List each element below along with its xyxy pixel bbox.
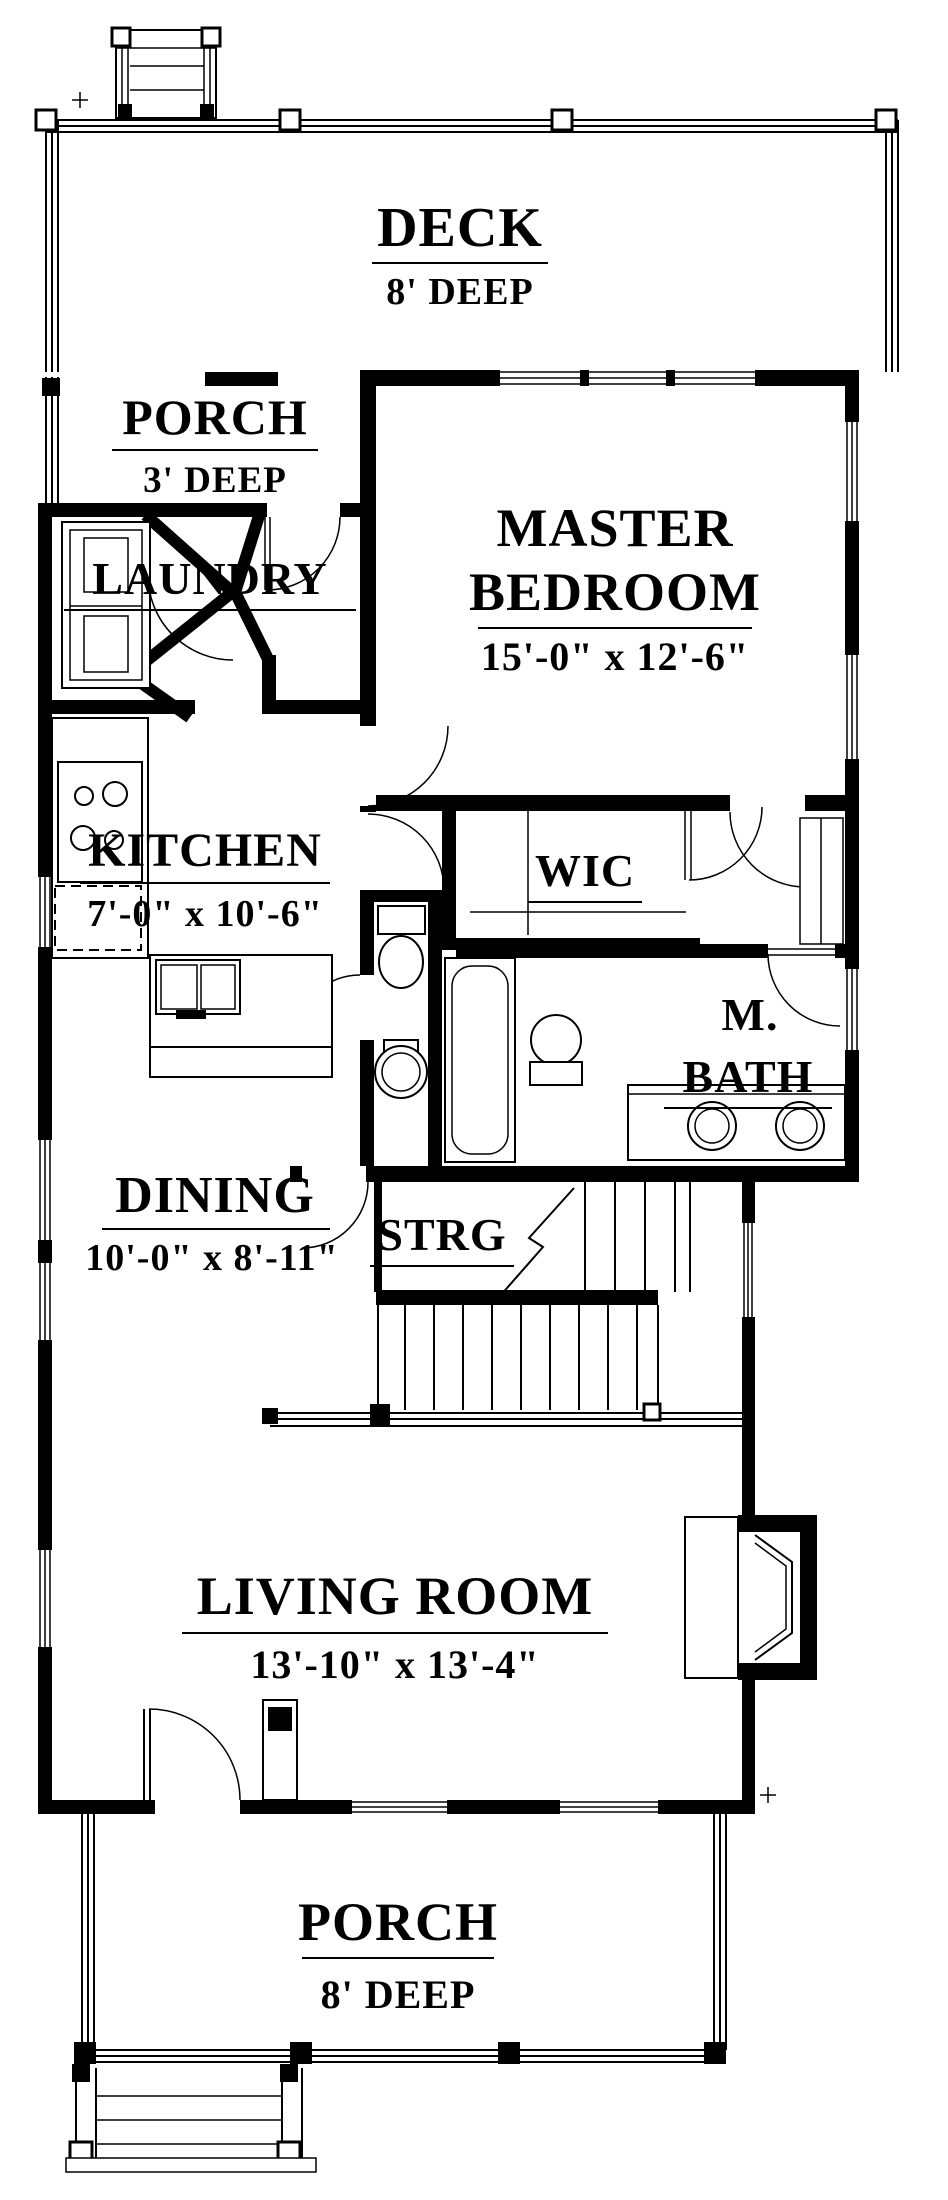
window [352,1802,447,1812]
wall-segment [805,795,845,811]
room-dim: 8' DEEP [321,1972,476,2017]
double-sink-icon [156,960,240,1019]
wall-segment [360,806,376,812]
room-label: STRG [377,1209,506,1260]
hall-closet [800,818,843,944]
wall-segment [686,795,700,807]
wall-segment [145,594,230,662]
door-swing [768,954,840,1026]
door-swing [730,812,805,887]
wall-segment [38,1340,52,1550]
rail-post [876,110,896,130]
window [744,1223,752,1317]
bathtub-icon [445,958,515,1162]
wall-segment [742,1317,755,1532]
room-label: DECK [377,197,543,259]
room-dim: 8' DEEP [386,271,533,313]
wall-segment [360,890,374,975]
sink-icon [688,1102,736,1150]
chimney-column [263,1700,297,1800]
wall-segment [658,1800,755,1814]
window [40,1263,50,1340]
front-door [144,1709,240,1800]
room-label: M. [722,989,779,1040]
wall-segment [38,1647,52,1814]
rail-post [370,1404,390,1426]
room-label: LAUNDRY [92,553,327,604]
rail-post [118,104,132,118]
room-dim: 13'-10" x 13'-4" [250,1642,539,1687]
powder-room [366,898,428,1098]
rail-post [280,2064,298,2082]
door-swing [149,1709,240,1800]
wall-segment [742,1166,755,1223]
window [847,422,857,521]
kitchen-island [150,955,332,1077]
wall-segment [442,795,456,950]
rail-post [280,110,300,130]
deck-stairs [112,28,220,118]
hearth [685,1517,738,1678]
room-label: KITCHEN [88,824,322,877]
door-swing [368,726,448,806]
room-dim: 7'-0" x 10'-6" [87,893,323,935]
wall-segment [845,759,859,969]
wic: WIC [470,800,843,944]
door-swing [689,807,762,880]
sink-icon [776,1102,824,1150]
pedestal-sink-icon [375,1040,427,1098]
stair-railing [262,1404,744,1426]
firebox-inner [755,1543,786,1652]
wall-segment [360,1040,374,1166]
room-label: PORCH [122,389,308,445]
fireplace-icon [685,1515,817,1680]
rail-post [552,110,572,130]
break-line [500,1188,574,1296]
window [40,1550,50,1647]
wall-segment [38,503,52,877]
wall-segment [262,700,362,714]
rail-post [202,28,220,46]
room-label: BATH [683,1051,814,1102]
window [40,877,50,947]
porch-upper: PORCH 3' DEEP [46,377,318,503]
wall-segment [447,1800,560,1814]
bath-door [768,949,840,1026]
window [847,655,857,759]
kitchen: KITCHEN 7'-0" x 10'-6" [52,718,332,1077]
deck: DECK 8' DEEP [36,28,898,396]
wall-segment [456,944,768,958]
room-label: DINING [115,1167,315,1224]
wic-door [685,807,762,880]
wall-segment [205,372,278,386]
wall-segment [376,795,730,811]
rail-post [262,1408,278,1424]
wall-segment [376,1290,658,1305]
wall-segment [38,1800,155,1814]
bottom-step [66,2158,316,2172]
wall-segment [845,1050,859,1182]
rail-post [36,110,56,130]
rail-post [644,1404,660,1420]
rail-post [112,28,130,46]
porch-lower: PORCH 8' DEEP [66,1814,726,2172]
dining: DINING 10'-0" x 8'-11" [85,1167,339,1279]
wall-segment [360,890,443,902]
wall-segment [360,370,376,726]
window [40,1140,50,1240]
rail-post [74,2042,96,2064]
toilet-icon [378,906,425,988]
wall-segment [38,947,52,1140]
rail-post [200,104,214,118]
rail-post [498,2042,520,2064]
living-room: LIVING ROOM 13'-10" x 13'-4" [182,1515,817,1803]
washer-dryer-icon [62,522,150,688]
laundry-angled-walls [145,519,266,714]
wall-segment [835,944,845,958]
porch-steps [66,2064,316,2172]
room-label: PORCH [298,1892,498,1952]
window [500,370,755,386]
wall-segment [360,370,500,386]
window [560,1802,658,1812]
stair-lower-run [378,1305,658,1410]
cross-mark-icon [760,1787,776,1803]
rail-post [290,2042,312,2064]
wall-segment [755,370,845,386]
wall-segment [366,1166,845,1182]
rail-post [72,2064,90,2082]
wall-segment [237,596,266,655]
room-dim: 3' DEEP [143,460,287,501]
wall-segment [845,521,859,655]
room-label: BEDROOM [469,562,761,622]
floor-plan: DECK 8' DEEP PORCH 3' DEEP [0,0,948,2200]
toilet-icon [530,1015,582,1085]
wall-segment [340,503,362,517]
wall-segment [240,1800,352,1814]
rail-post [704,2042,726,2064]
wall-segment [38,1240,52,1263]
wall-segment [428,902,442,1166]
room-label: LIVING ROOM [197,1566,594,1626]
window [847,969,857,1050]
room-label: MASTER [496,498,733,558]
room-dim: 10'-0" x 8'-11" [85,1237,339,1279]
room-dim: 15'-0" x 12'-6" [481,634,749,679]
room-label: WIC [535,845,635,896]
wall-segment [845,370,859,422]
master-bath: M. BATH [445,958,845,1162]
master-bedroom: MASTER BEDROOM 15'-0" x 12'-6" [469,498,761,679]
wall-segment [742,1663,755,1814]
cross-mark-icon [72,92,88,108]
door-swing [368,814,444,890]
